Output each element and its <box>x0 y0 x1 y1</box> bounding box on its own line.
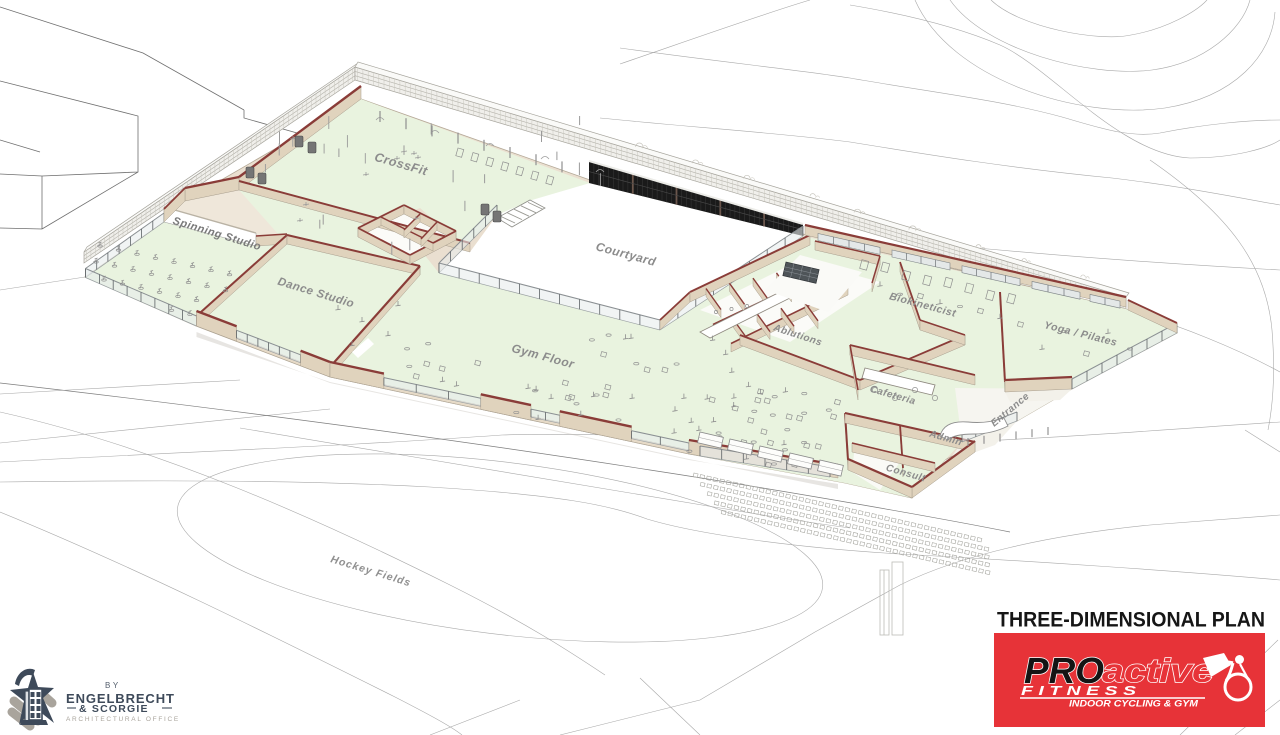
svg-text:INDOOR CYCLING & GYM: INDOOR CYCLING & GYM <box>1069 699 1199 709</box>
svg-text:& SCORGIE: & SCORGIE <box>79 703 149 715</box>
svg-text:F I T N E S S: F I T N E S S <box>1021 684 1137 698</box>
svg-text:THREE-DIMENSIONAL PLAN: THREE-DIMENSIONAL PLAN <box>997 608 1265 632</box>
svg-text:BY: BY <box>105 681 121 690</box>
svg-text:ARCHITECTURAL OFFICE: ARCHITECTURAL OFFICE <box>66 716 180 723</box>
